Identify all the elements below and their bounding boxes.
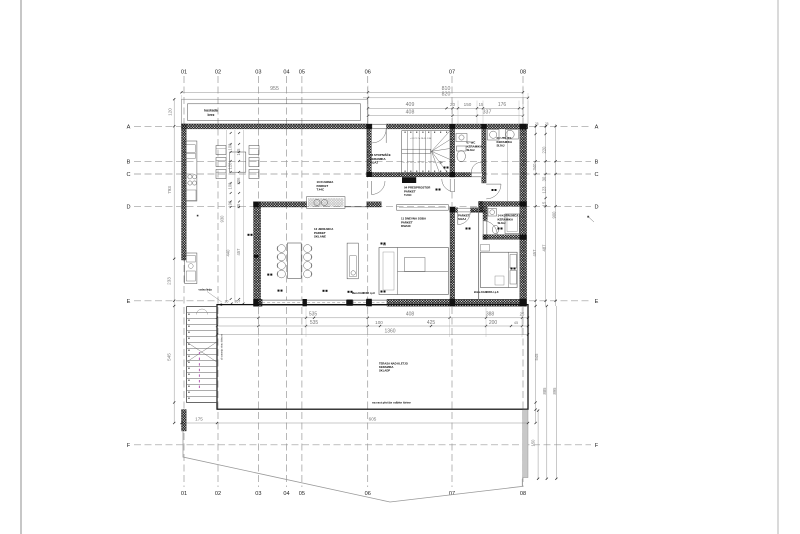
- svg-text:895: 895: [552, 387, 557, 395]
- svg-text:08: 08: [520, 491, 526, 497]
- svg-text:457: 457: [532, 249, 537, 257]
- svg-text:08: 08: [520, 70, 526, 76]
- svg-text:SIJAJ: SIJAJ: [458, 217, 466, 221]
- svg-text:04: 04: [283, 491, 289, 497]
- svg-text:T.24C: T.24C: [404, 193, 412, 197]
- svg-text:TERASA NAD KLETJO: TERASA NAD KLETJO: [379, 362, 408, 366]
- svg-text:01: 01: [181, 70, 187, 76]
- svg-text:155: 155: [236, 148, 241, 156]
- svg-text:220: 220: [542, 146, 547, 154]
- svg-text:176: 176: [498, 102, 507, 108]
- svg-text:B: B: [595, 159, 599, 165]
- svg-text:930: 930: [220, 215, 225, 223]
- svg-text:1360: 1360: [384, 328, 395, 334]
- svg-text:100: 100: [228, 182, 233, 190]
- svg-text:409: 409: [406, 102, 415, 108]
- svg-text:SKLANE: SKLANE: [314, 235, 326, 239]
- svg-text:408: 408: [406, 312, 415, 318]
- svg-text:SKLADP: SKLADP: [379, 369, 390, 373]
- svg-text:04: 04: [283, 70, 289, 76]
- svg-text:120: 120: [228, 162, 233, 170]
- svg-text:na rast plošče odbite širine: na rast plošče odbite širine: [372, 401, 411, 405]
- svg-text:T.44C: T.44C: [317, 188, 325, 192]
- svg-text:425: 425: [427, 320, 436, 326]
- svg-text:06: 06: [365, 491, 371, 497]
- svg-text:233: 233: [167, 277, 172, 285]
- svg-text:SIJAJ: SIJAJ: [467, 148, 475, 152]
- svg-text:ob zunanjo steno širina m: ob zunanjo steno širina m: [221, 334, 224, 360]
- svg-text:07: 07: [449, 70, 455, 76]
- svg-text:487: 487: [542, 244, 547, 252]
- svg-text:388: 388: [486, 312, 495, 318]
- svg-text:klima KANDIRA t.p.8: klima KANDIRA t.p.8: [474, 291, 499, 294]
- svg-text:C: C: [126, 172, 130, 178]
- svg-text:SIJAJ: SIJAJ: [497, 144, 505, 148]
- svg-text:F: F: [127, 443, 131, 449]
- svg-text:408: 408: [406, 110, 415, 116]
- svg-text:01: 01: [181, 491, 187, 497]
- svg-text:D: D: [594, 204, 598, 210]
- svg-text:605: 605: [369, 417, 377, 422]
- svg-text:05: 05: [299, 70, 305, 76]
- svg-text:457: 457: [236, 248, 241, 256]
- svg-text:02: 02: [215, 491, 221, 497]
- svg-text:03: 03: [255, 491, 261, 497]
- svg-text:B: B: [127, 159, 131, 165]
- svg-text:150: 150: [530, 439, 535, 447]
- svg-text:SIJAJ: SIJAJ: [498, 221, 506, 225]
- svg-text:vodna linija: vodna linija: [199, 289, 213, 292]
- svg-text:100: 100: [228, 143, 233, 151]
- svg-text:440: 440: [225, 249, 230, 257]
- svg-text:20: 20: [225, 299, 229, 303]
- svg-text:05: 05: [299, 491, 305, 497]
- svg-text:20: 20: [450, 102, 456, 107]
- svg-text:820: 820: [442, 92, 451, 98]
- svg-text:D: D: [126, 204, 130, 210]
- svg-text:A: A: [595, 124, 599, 130]
- svg-text:Mera KANDIRA t.p.8: Mera KANDIRA t.p.8: [352, 292, 375, 295]
- svg-text:267: 267: [235, 299, 241, 303]
- svg-text:955: 955: [270, 86, 279, 92]
- svg-text:E: E: [127, 299, 131, 305]
- svg-text:337: 337: [483, 110, 492, 116]
- svg-text:200: 200: [489, 320, 498, 326]
- svg-text:15: 15: [479, 102, 484, 107]
- svg-text:900: 900: [552, 211, 557, 219]
- svg-text:100: 100: [375, 320, 383, 325]
- svg-text:brez: brez: [208, 113, 215, 117]
- svg-text:175: 175: [195, 417, 203, 422]
- svg-text:F: F: [595, 443, 599, 449]
- svg-text:C: C: [594, 172, 598, 178]
- svg-text:150: 150: [464, 102, 472, 107]
- svg-text:15: 15: [542, 201, 547, 206]
- svg-text:545: 545: [534, 353, 539, 361]
- svg-text:07: 07: [449, 491, 455, 497]
- svg-text:A: A: [127, 124, 131, 130]
- svg-text:793: 793: [167, 186, 172, 194]
- svg-text:545: 545: [167, 353, 172, 361]
- svg-text:02: 02: [215, 70, 221, 76]
- svg-text:KERAMIKA: KERAMIKA: [379, 365, 394, 369]
- svg-text:E: E: [595, 299, 599, 305]
- svg-text:DS2HC: DS2HC: [401, 224, 412, 228]
- svg-text:123: 123: [542, 186, 547, 194]
- svg-text:885: 885: [542, 387, 547, 395]
- svg-text:340: 340: [532, 163, 537, 171]
- svg-text:kaskada: kaskada: [204, 109, 217, 113]
- svg-text:535: 535: [310, 320, 319, 326]
- svg-text:+ 0.17 17 x 28.4 L 2.86: + 0.17 17 x 28.4 L 2.86: [410, 138, 432, 140]
- svg-text:30: 30: [542, 176, 547, 181]
- svg-text:45: 45: [514, 321, 518, 325]
- svg-text:03: 03: [255, 70, 261, 76]
- svg-text:25: 25: [520, 312, 525, 317]
- svg-text:535: 535: [309, 312, 318, 318]
- svg-text:120: 120: [168, 108, 173, 116]
- svg-text:06: 06: [365, 70, 371, 76]
- svg-text:SIJAJ: SIJAJ: [370, 161, 378, 165]
